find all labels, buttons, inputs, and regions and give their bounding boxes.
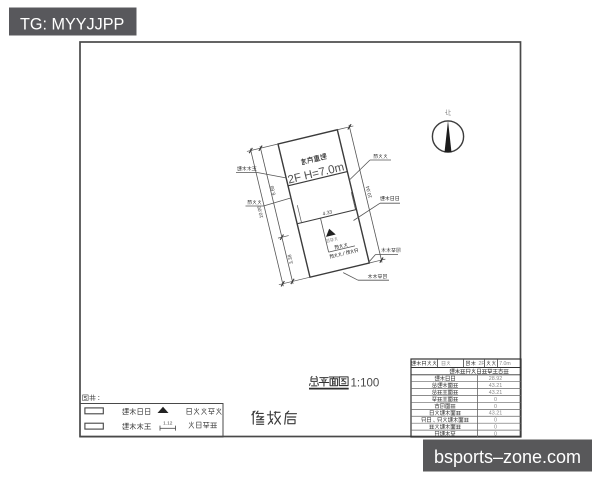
svg-text:43.21: 43.21 xyxy=(489,411,503,417)
svg-text:2F: 2F xyxy=(478,361,484,367)
svg-text:TG: MYYJJPP: TG: MYYJJPP xyxy=(20,15,124,33)
svg-text:28.92: 28.92 xyxy=(489,376,503,382)
svg-text:43.21: 43.21 xyxy=(489,383,503,389)
svg-text:1.12: 1.12 xyxy=(163,421,173,427)
svg-text:0: 0 xyxy=(494,397,497,403)
svg-text:1:100: 1:100 xyxy=(351,378,380,390)
svg-text:0: 0 xyxy=(494,404,497,410)
svg-text:0: 0 xyxy=(494,425,497,431)
svg-text:bsports–zone.com: bsports–zone.com xyxy=(434,447,581,467)
svg-text:0: 0 xyxy=(494,418,497,424)
svg-text:0: 0 xyxy=(494,431,497,437)
svg-text:7.0m: 7.0m xyxy=(499,361,511,367)
svg-text:43.21: 43.21 xyxy=(489,390,503,396)
